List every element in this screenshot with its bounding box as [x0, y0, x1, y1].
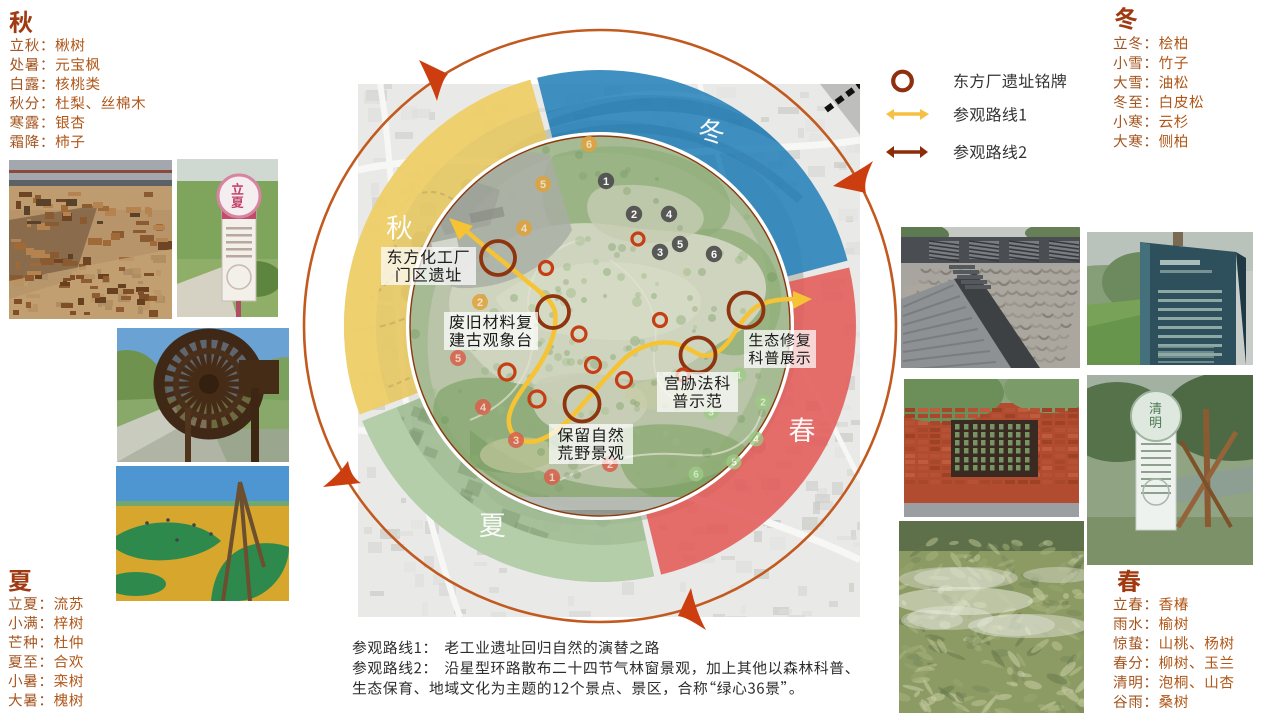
svg-text:2: 2 [631, 209, 637, 221]
svg-text:5: 5 [540, 179, 546, 191]
svg-text:4: 4 [666, 209, 673, 221]
svg-text:2: 2 [477, 297, 483, 309]
svg-text:4: 4 [480, 402, 487, 414]
svg-text:4: 4 [753, 435, 759, 446]
svg-text:1: 1 [549, 472, 555, 484]
svg-text:3: 3 [513, 435, 519, 447]
svg-text:6: 6 [693, 470, 699, 481]
svg-text:5: 5 [731, 458, 737, 469]
svg-text:5: 5 [455, 353, 461, 365]
svg-text:6: 6 [586, 139, 592, 151]
svg-text:3: 3 [657, 247, 663, 259]
svg-text:2: 2 [760, 398, 766, 409]
svg-text:1: 1 [603, 176, 609, 188]
svg-text:4: 4 [521, 223, 528, 235]
svg-text:6: 6 [711, 249, 717, 261]
svg-text:5: 5 [677, 239, 683, 251]
